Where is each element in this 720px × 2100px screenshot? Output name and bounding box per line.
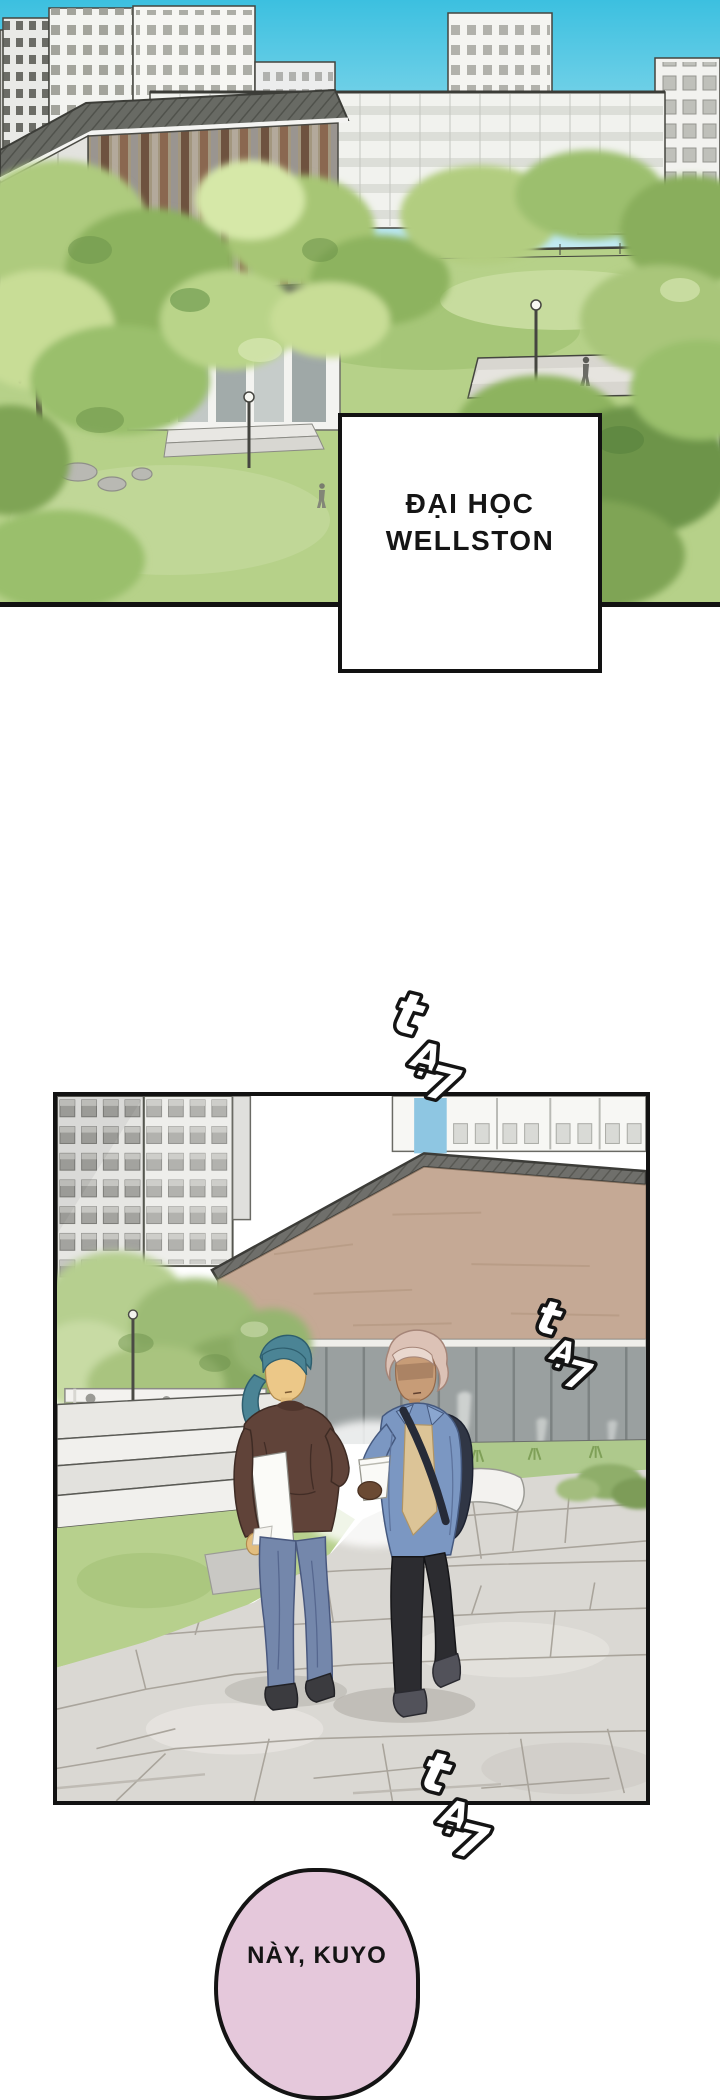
speech-bubble-text: NÀY, KUYO: [247, 1942, 387, 1970]
caption-line-2: WELLSTON: [386, 522, 555, 559]
caption-line-1: ĐẠI HỌC: [406, 485, 535, 522]
caption-box: ĐẠI HỌC WELLSTON: [338, 413, 602, 673]
mid-building: [392, 1096, 646, 1153]
sky-gap: [414, 1098, 447, 1153]
sfx-footstep-1: t Ạ 7: [380, 990, 484, 1102]
left-character-shoe: [265, 1683, 298, 1710]
walking-scene: [57, 1096, 646, 1801]
sfx-footstep-2: t Ạ 7: [526, 1298, 618, 1390]
right-character-boot: [393, 1689, 426, 1717]
right-character-hand: [358, 1482, 382, 1500]
panel-walking-scene: [53, 1092, 650, 1805]
sfx-footstep-3: t Ạ 7: [408, 1748, 514, 1860]
speech-bubble: NÀY, KUYO: [214, 1868, 420, 2100]
